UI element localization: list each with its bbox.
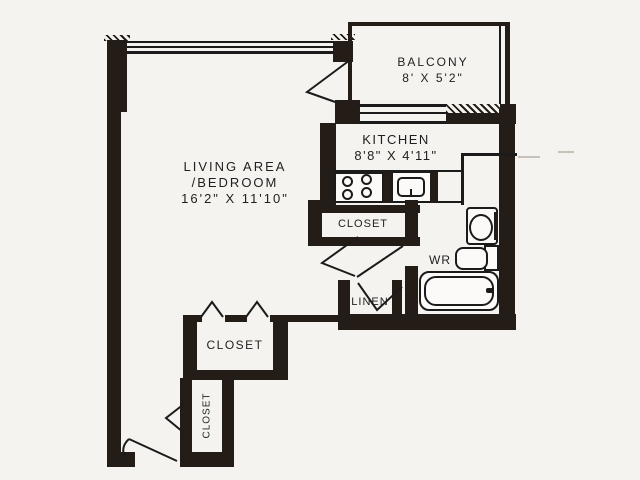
entry-closet-door-swing — [166, 404, 184, 432]
living-area-name: LIVING AREA — [140, 159, 330, 175]
closet-bifold-door — [201, 302, 223, 317]
closet-bifold-door — [246, 302, 268, 317]
washroom-label: WR — [423, 252, 457, 268]
kitchen-closet-label: CLOSET — [322, 216, 404, 232]
washroom-door-swing — [357, 246, 403, 277]
living-area-label: LIVING AREA /BEDROOM 16'2" X 11'10" — [140, 159, 330, 207]
kitchen-name: KITCHEN — [330, 132, 462, 148]
hall-door-swing — [322, 237, 358, 276]
living-area-dimensions: 16'2" X 11'10" — [140, 191, 330, 207]
bedroom-closet-label: CLOSET — [197, 337, 273, 353]
balcony-label: BALCONY 8' X 5'2" — [368, 54, 498, 86]
kitchen-label: KITCHEN 8'8" X 4'11" — [330, 132, 462, 164]
balcony-name: BALCONY — [368, 54, 498, 70]
balcony-door-swing — [307, 60, 350, 103]
kitchen-dimensions: 8'8" X 4'11" — [330, 148, 462, 164]
balcony-dimensions: 8' X 5'2" — [368, 70, 498, 86]
entry-door-swing — [123, 439, 177, 461]
entry-closet-name: CLOSET — [202, 392, 213, 438]
entry-closet-label: CLOSET — [193, 386, 221, 444]
linen-closet-label: LINEN — [339, 294, 401, 310]
door-swings — [0, 0, 640, 480]
floor-plan: LIVING AREA /BEDROOM 16'2" X 11'10" BALC… — [0, 0, 640, 480]
living-area-name2: /BEDROOM — [140, 175, 330, 191]
